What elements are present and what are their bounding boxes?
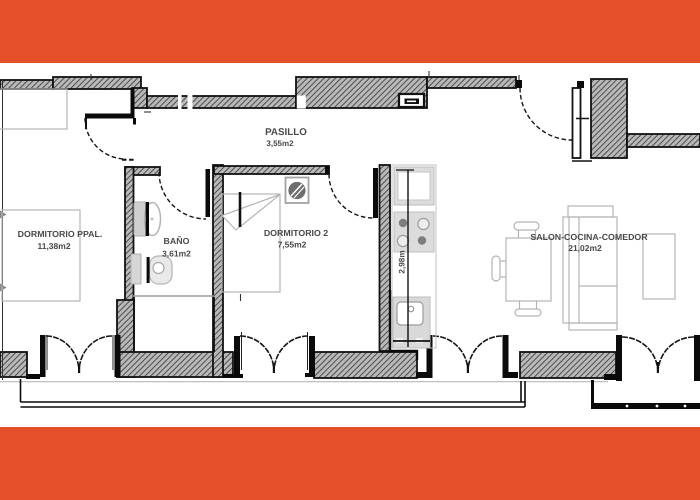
svg-text:11,38m2: 11,38m2 xyxy=(37,241,70,251)
svg-text:DORMITORIO PPAL.: DORMITORIO PPAL. xyxy=(18,229,103,239)
svg-text:21,02m2: 21,02m2 xyxy=(568,243,602,253)
svg-text:2,98m: 2,98m xyxy=(397,250,406,273)
svg-text:PASILLO: PASILLO xyxy=(265,127,307,138)
svg-text:7,55m2: 7,55m2 xyxy=(278,240,307,250)
svg-text:DORMITORIO 2: DORMITORIO 2 xyxy=(264,228,328,238)
svg-text:BAÑO: BAÑO xyxy=(164,236,190,246)
svg-text:SALON-COCINA-COMEDOR: SALON-COCINA-COMEDOR xyxy=(530,232,648,242)
svg-text:3,61m2: 3,61m2 xyxy=(162,249,191,259)
svg-text:3,55m2: 3,55m2 xyxy=(266,139,294,148)
